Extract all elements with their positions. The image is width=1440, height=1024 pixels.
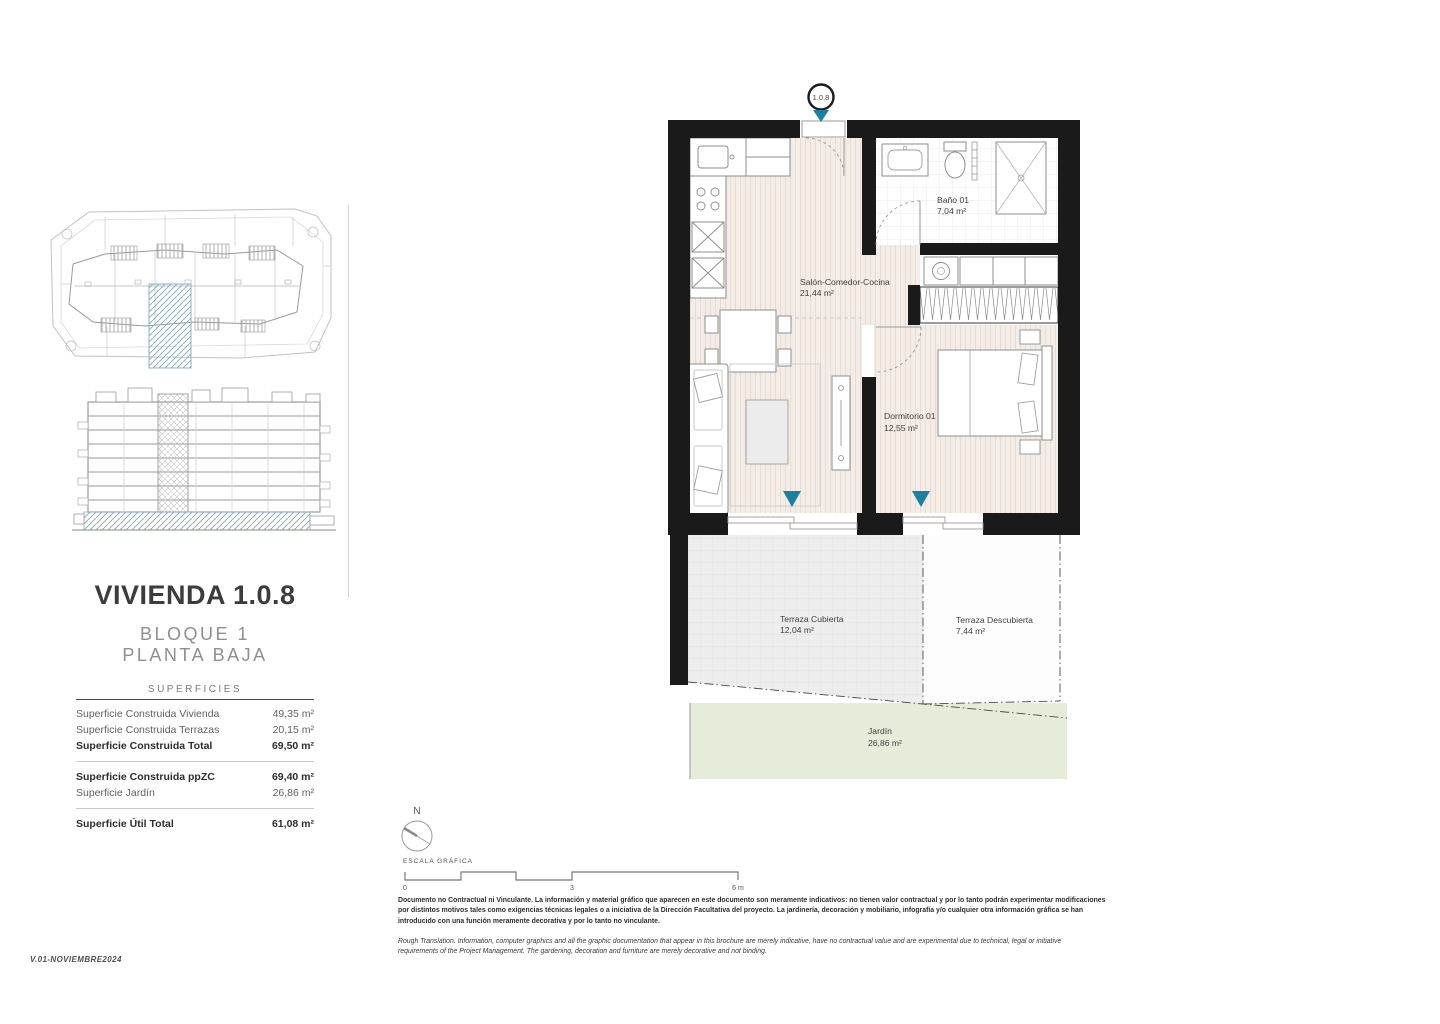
column-divider-line <box>348 205 349 598</box>
table-row: Superficie Construida Vivienda 49,35 m² <box>76 706 314 722</box>
stair-core-section <box>158 394 188 512</box>
table-row: Superficie Útil Total 61,08 m² <box>76 816 314 832</box>
row-label: Superficie Construida Vivienda <box>76 706 219 722</box>
row-label: Superficie Construida ppZC <box>76 769 215 785</box>
brochure-page: VIVIENDA 1.0.8 BLOQUE 1 PLANTA BAJA SUPE… <box>0 0 1440 1024</box>
row-value: 61,08 m² <box>272 816 314 832</box>
bed <box>938 346 1052 440</box>
row-label: Superficie Jardín <box>76 785 155 801</box>
room-label-dormitorio: Dormitorio 01 <box>884 411 936 421</box>
scale-bar <box>405 872 738 880</box>
surfaces-header: SUPERFICIES <box>76 684 314 700</box>
scale-tick-6: 6 m <box>732 885 744 892</box>
unit-subtitle: BLOQUE 1 PLANTA BAJA <box>45 624 345 666</box>
room-area-dormitorio: 12,55 m² <box>884 423 918 433</box>
table-row: Superficie Jardín 26,86 m² <box>76 785 314 801</box>
floor-plan: 1.0.8 Salón-Comedor-Cocina 21,44 m² Baño… <box>640 70 1090 790</box>
scale-title: ESCALA GRÁFICA <box>403 856 473 865</box>
graphic-scale: N ESCALA GRÁFICA 0 3 6 m <box>395 800 747 892</box>
room-area-jardin: 26,86 m² <box>868 738 902 748</box>
nightstand <box>1020 330 1040 344</box>
unit-badge: 1.0.8 <box>809 85 834 110</box>
washing-machine <box>924 257 958 285</box>
row-value: 20,15 m² <box>273 722 314 738</box>
row-label: Superficie Útil Total <box>76 816 174 832</box>
room-area-salon: 21,44 m² <box>800 288 834 298</box>
row-label: Superficie Construida Terrazas <box>76 722 219 738</box>
room-area-terraza-descubierta: 7,44 m² <box>956 626 985 636</box>
highlighted-unit-location <box>149 284 191 368</box>
scale-tick-3: 3 <box>570 885 574 892</box>
north-arrow-icon <box>402 821 432 851</box>
room-area-bano: 7,04 m² <box>937 206 966 216</box>
block-label: BLOQUE 1 <box>45 624 345 645</box>
row-value: 49,35 m² <box>273 706 314 722</box>
unit-badge-label: 1.0.8 <box>813 93 830 102</box>
row-value: 69,40 m² <box>272 769 314 785</box>
version-label: V.01-NOVIEMBRE2024 <box>30 955 122 964</box>
unit-title: VIVIENDA 1.0.8 <box>45 580 345 611</box>
roof-elements <box>96 388 320 402</box>
room-label-bano: Baño 01 <box>937 195 969 205</box>
room-label-jardin: Jardín <box>868 726 892 736</box>
room-label-terraza-descubierta: Terraza Descubierta <box>956 615 1033 625</box>
scale-tick-0: 0 <box>403 885 407 892</box>
tv-sideboard <box>832 376 850 470</box>
sofa <box>688 364 728 514</box>
table-row: Superficie Construida Total 69,50 m² <box>76 738 314 754</box>
surfaces-table: SUPERFICIES Superficie Construida Vivien… <box>76 684 314 832</box>
building-elevation-diagram <box>72 386 336 536</box>
north-label: N <box>413 806 420 817</box>
toilet <box>944 142 966 178</box>
table-separator <box>76 761 314 762</box>
site-plan-diagram <box>45 206 337 374</box>
entrance-arrow-icon <box>813 110 829 122</box>
room-label-terraza-cubierta: Terraza Cubierta <box>780 614 844 624</box>
coffee-table <box>746 400 788 464</box>
utility-counter <box>960 257 1058 285</box>
room-label-salon: Salón-Comedor-Cocina <box>800 277 890 287</box>
disclaimer-spanish: Documento no Contractual ni Vinculante. … <box>398 896 1116 927</box>
row-label: Superficie Construida Total <box>76 738 212 754</box>
highlighted-ground-floor <box>84 512 310 530</box>
wardrobe <box>920 287 1058 323</box>
row-value: 26,86 m² <box>273 785 314 801</box>
row-value: 69,50 m² <box>272 738 314 754</box>
disclaimer-english: Rough Translation. Information, computer… <box>398 937 1098 958</box>
sliding-doors <box>728 517 983 529</box>
bathroom-sink <box>882 144 928 176</box>
table-row: Superficie Construida ppZC 69,40 m² <box>76 769 314 785</box>
table-separator <box>76 808 314 809</box>
nightstand <box>1020 440 1040 454</box>
table-row: Superficie Construida Terrazas 20,15 m² <box>76 722 314 738</box>
room-area-terraza-cubierta: 12,04 m² <box>780 625 814 635</box>
shower <box>996 142 1046 214</box>
floor-label: PLANTA BAJA <box>45 645 345 666</box>
